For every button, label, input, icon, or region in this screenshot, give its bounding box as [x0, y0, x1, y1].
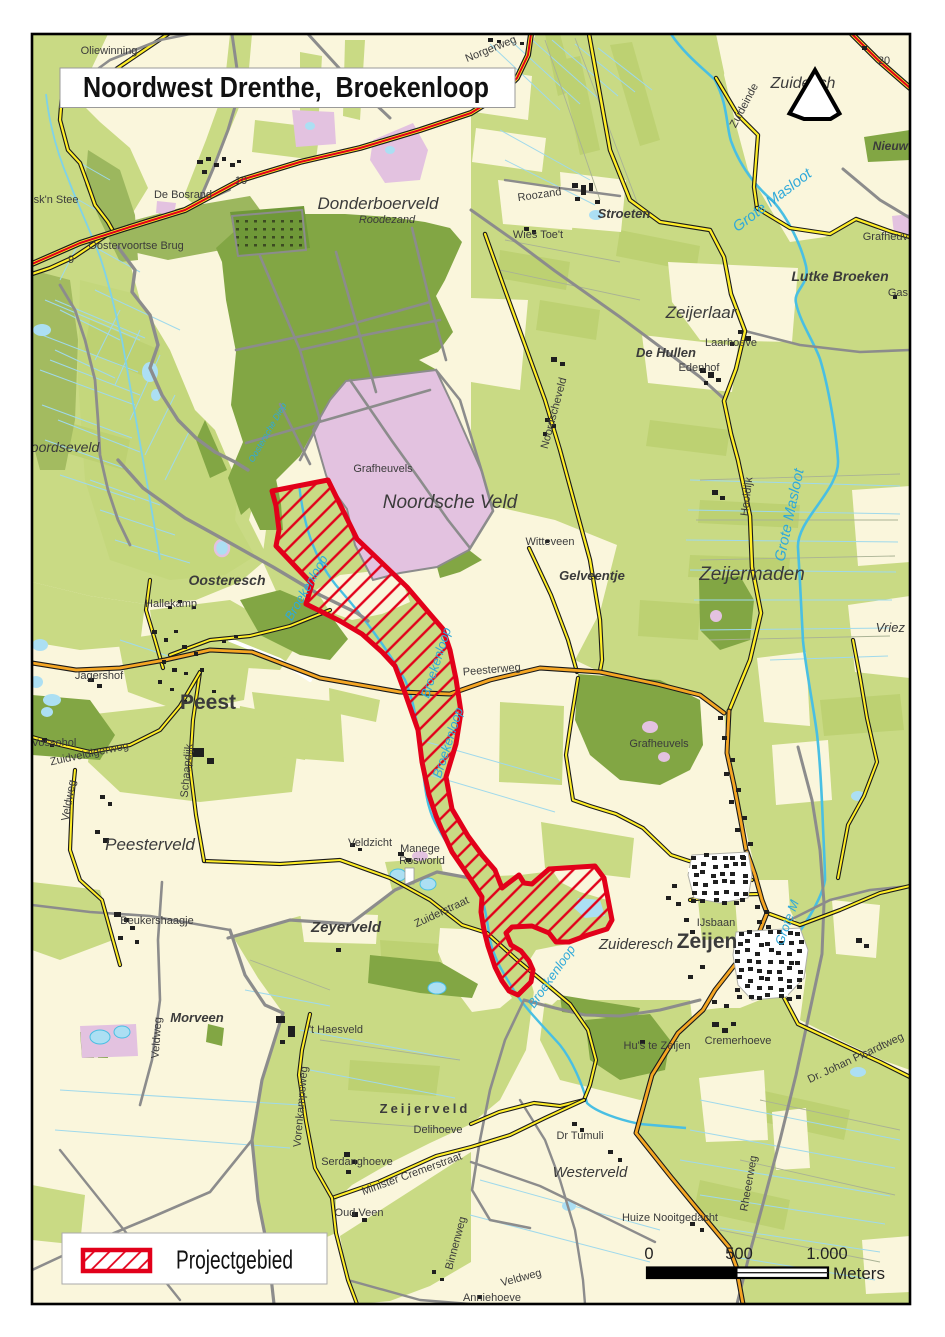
svg-text:Peest: Peest	[180, 691, 236, 714]
svg-text:Morveen: Morveen	[170, 1010, 224, 1025]
svg-text:Zeijen: Zeijen	[677, 930, 738, 953]
svg-text:Nieuw: Nieuw	[873, 139, 909, 153]
svg-text:Hallekamp: Hallekamp	[145, 598, 197, 610]
svg-text:Noordsche Veld: Noordsche Veld	[383, 492, 519, 513]
svg-text:Jagershof: Jagershof	[75, 670, 124, 682]
svg-text:Grafheuv: Grafheuv	[863, 231, 909, 243]
svg-text:Delihoeve: Delihoeve	[414, 1124, 463, 1136]
svg-text:Veldzicht: Veldzicht	[348, 837, 392, 849]
svg-text:Beukershaagje: Beukershaagje	[120, 915, 193, 927]
svg-text:IJsbaan: IJsbaan	[697, 917, 736, 929]
svg-text:Meters: Meters	[833, 1264, 885, 1283]
svg-text:Roodezand: Roodezand	[359, 214, 416, 226]
svg-text:Witteveen: Witteveen	[526, 536, 575, 548]
svg-text:De Bosrand: De Bosrand	[154, 189, 212, 201]
svg-text:Gas: Gas	[888, 287, 909, 299]
svg-text:Zeyerveld: Zeyerveld	[310, 919, 382, 936]
svg-text:Grafheuvels: Grafheuvels	[353, 463, 413, 475]
svg-text:Gelveentje: Gelveentje	[559, 568, 625, 583]
svg-text:Zeijermaden: Zeijermaden	[698, 564, 805, 585]
svg-text:Stroeten: Stroeten	[598, 206, 651, 221]
svg-text:Laarhoeve: Laarhoeve	[705, 337, 757, 349]
svg-text:10: 10	[235, 175, 247, 187]
svg-text:Cremerhoeve: Cremerhoeve	[705, 1035, 772, 1047]
svg-text:Vossehol: Vossehol	[32, 737, 77, 749]
svg-text:Manege: Manege	[400, 843, 440, 855]
svg-text:Rosworld: Rosworld	[399, 855, 445, 867]
svg-text:Zuideresch: Zuideresch	[598, 936, 673, 953]
svg-text:9: 9	[68, 254, 74, 266]
svg-text:Grafheuvels: Grafheuvels	[629, 738, 689, 750]
svg-text:Hu's te Zeijen: Hu's te Zeijen	[624, 1040, 691, 1052]
svg-text:Huize Nooitgedacht: Huize Nooitgedacht	[622, 1212, 718, 1224]
svg-text:Zeijerlaar: Zeijerlaar	[665, 303, 738, 322]
svg-text:De Hullen: De Hullen	[636, 345, 696, 360]
svg-text:Noordwest Drenthe, Broekenloo: Noordwest Drenthe, Broekenloop	[83, 72, 489, 104]
svg-text:Lutke Broeken: Lutke Broeken	[791, 268, 888, 284]
svg-text:Edenhof: Edenhof	[679, 362, 721, 374]
svg-text:500: 500	[725, 1245, 753, 1263]
svg-text:20: 20	[878, 55, 890, 67]
svg-text:Projectgebied: Projectgebied	[176, 1245, 293, 1275]
svg-text:Westerveld: Westerveld	[553, 1164, 628, 1181]
svg-text:nsk'n Stee: nsk'n Stee	[27, 194, 78, 206]
svg-text:Donderboerveld: Donderboerveld	[318, 194, 440, 213]
svg-text:Serdanghoeve: Serdanghoeve	[321, 1156, 393, 1168]
svg-text:0: 0	[644, 1245, 653, 1263]
svg-text:Oosteresch: Oosteresch	[188, 572, 265, 588]
svg-text:Oliewinning: Oliewinning	[81, 45, 138, 57]
svg-text:Oud Veen: Oud Veen	[335, 1207, 384, 1219]
svg-text:Dr Tumuli: Dr Tumuli	[556, 1130, 603, 1142]
svg-text:'t Haesveld: 't Haesveld	[309, 1024, 363, 1036]
svg-text:Oostervoortse Brug: Oostervoortse Brug	[88, 240, 183, 252]
svg-text:Vriez: Vriez	[876, 620, 906, 635]
svg-text:Peesterveld: Peesterveld	[105, 835, 195, 854]
svg-text:Anniehoeve: Anniehoeve	[463, 1292, 521, 1304]
svg-text:1.000: 1.000	[806, 1245, 847, 1263]
svg-text:Wies Toe't: Wies Toe't	[513, 229, 563, 241]
svg-text:Zeijerveld: Zeijerveld	[380, 1101, 471, 1116]
